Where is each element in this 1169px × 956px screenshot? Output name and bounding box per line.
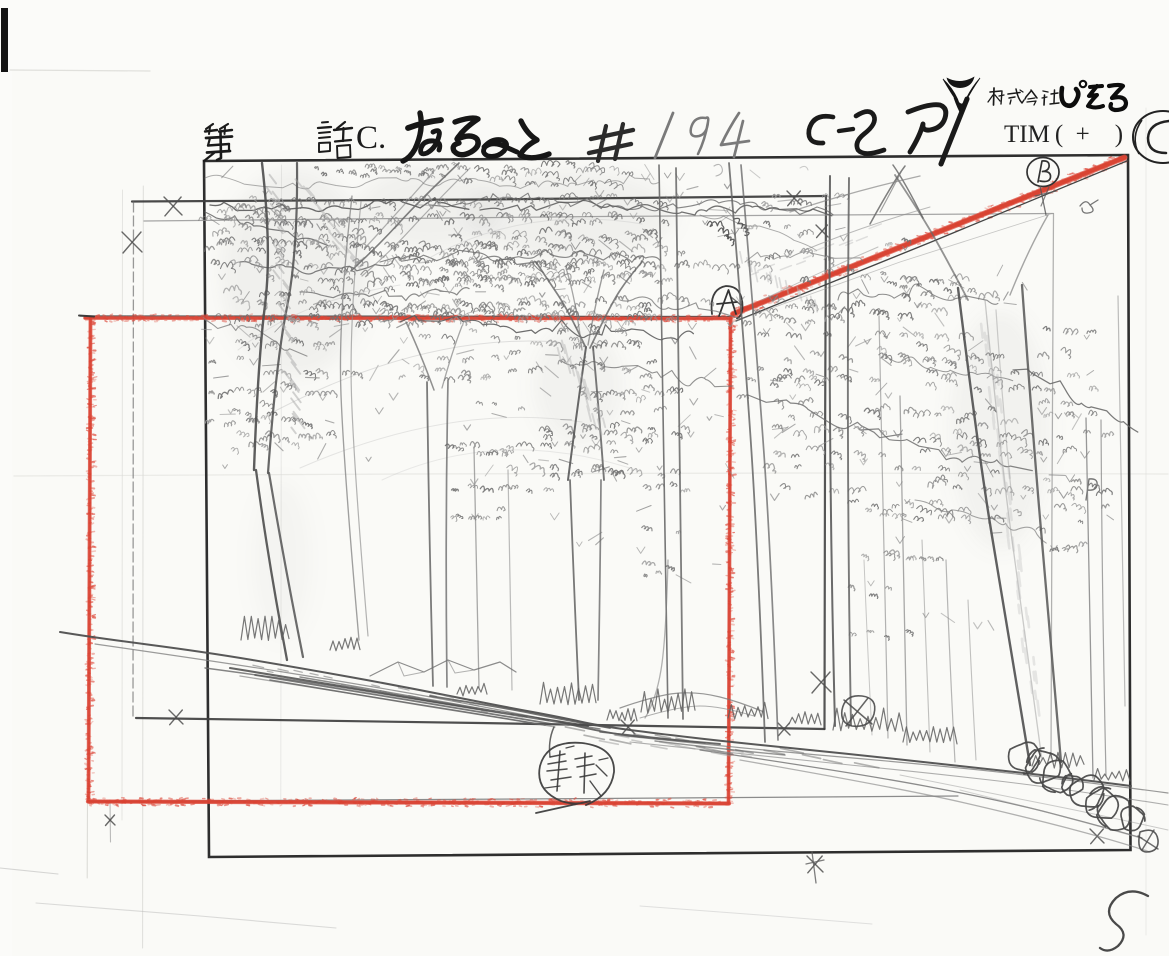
svg-text:TIM ( + ): TIM ( + ) bbox=[1004, 121, 1123, 148]
svg-text:C.: C. bbox=[356, 120, 386, 156]
